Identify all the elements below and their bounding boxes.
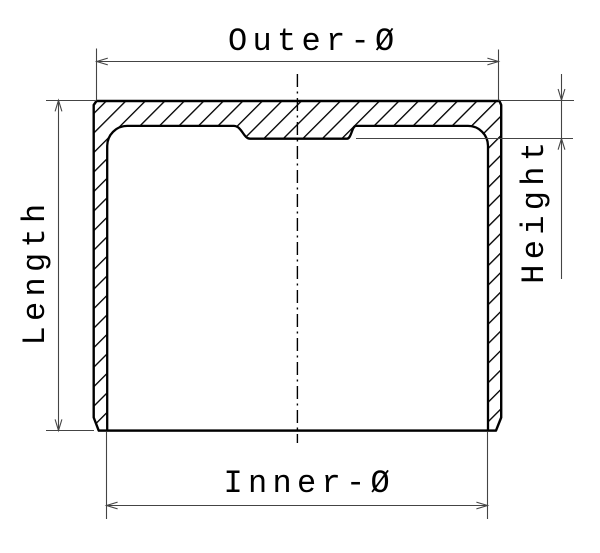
svg-text:Length: Length (17, 198, 54, 345)
svg-text:Inner-Ø: Inner-Ø (224, 465, 396, 502)
svg-text:Height: Height (516, 137, 553, 284)
svg-text:Outer-Ø: Outer-Ø (228, 23, 400, 60)
